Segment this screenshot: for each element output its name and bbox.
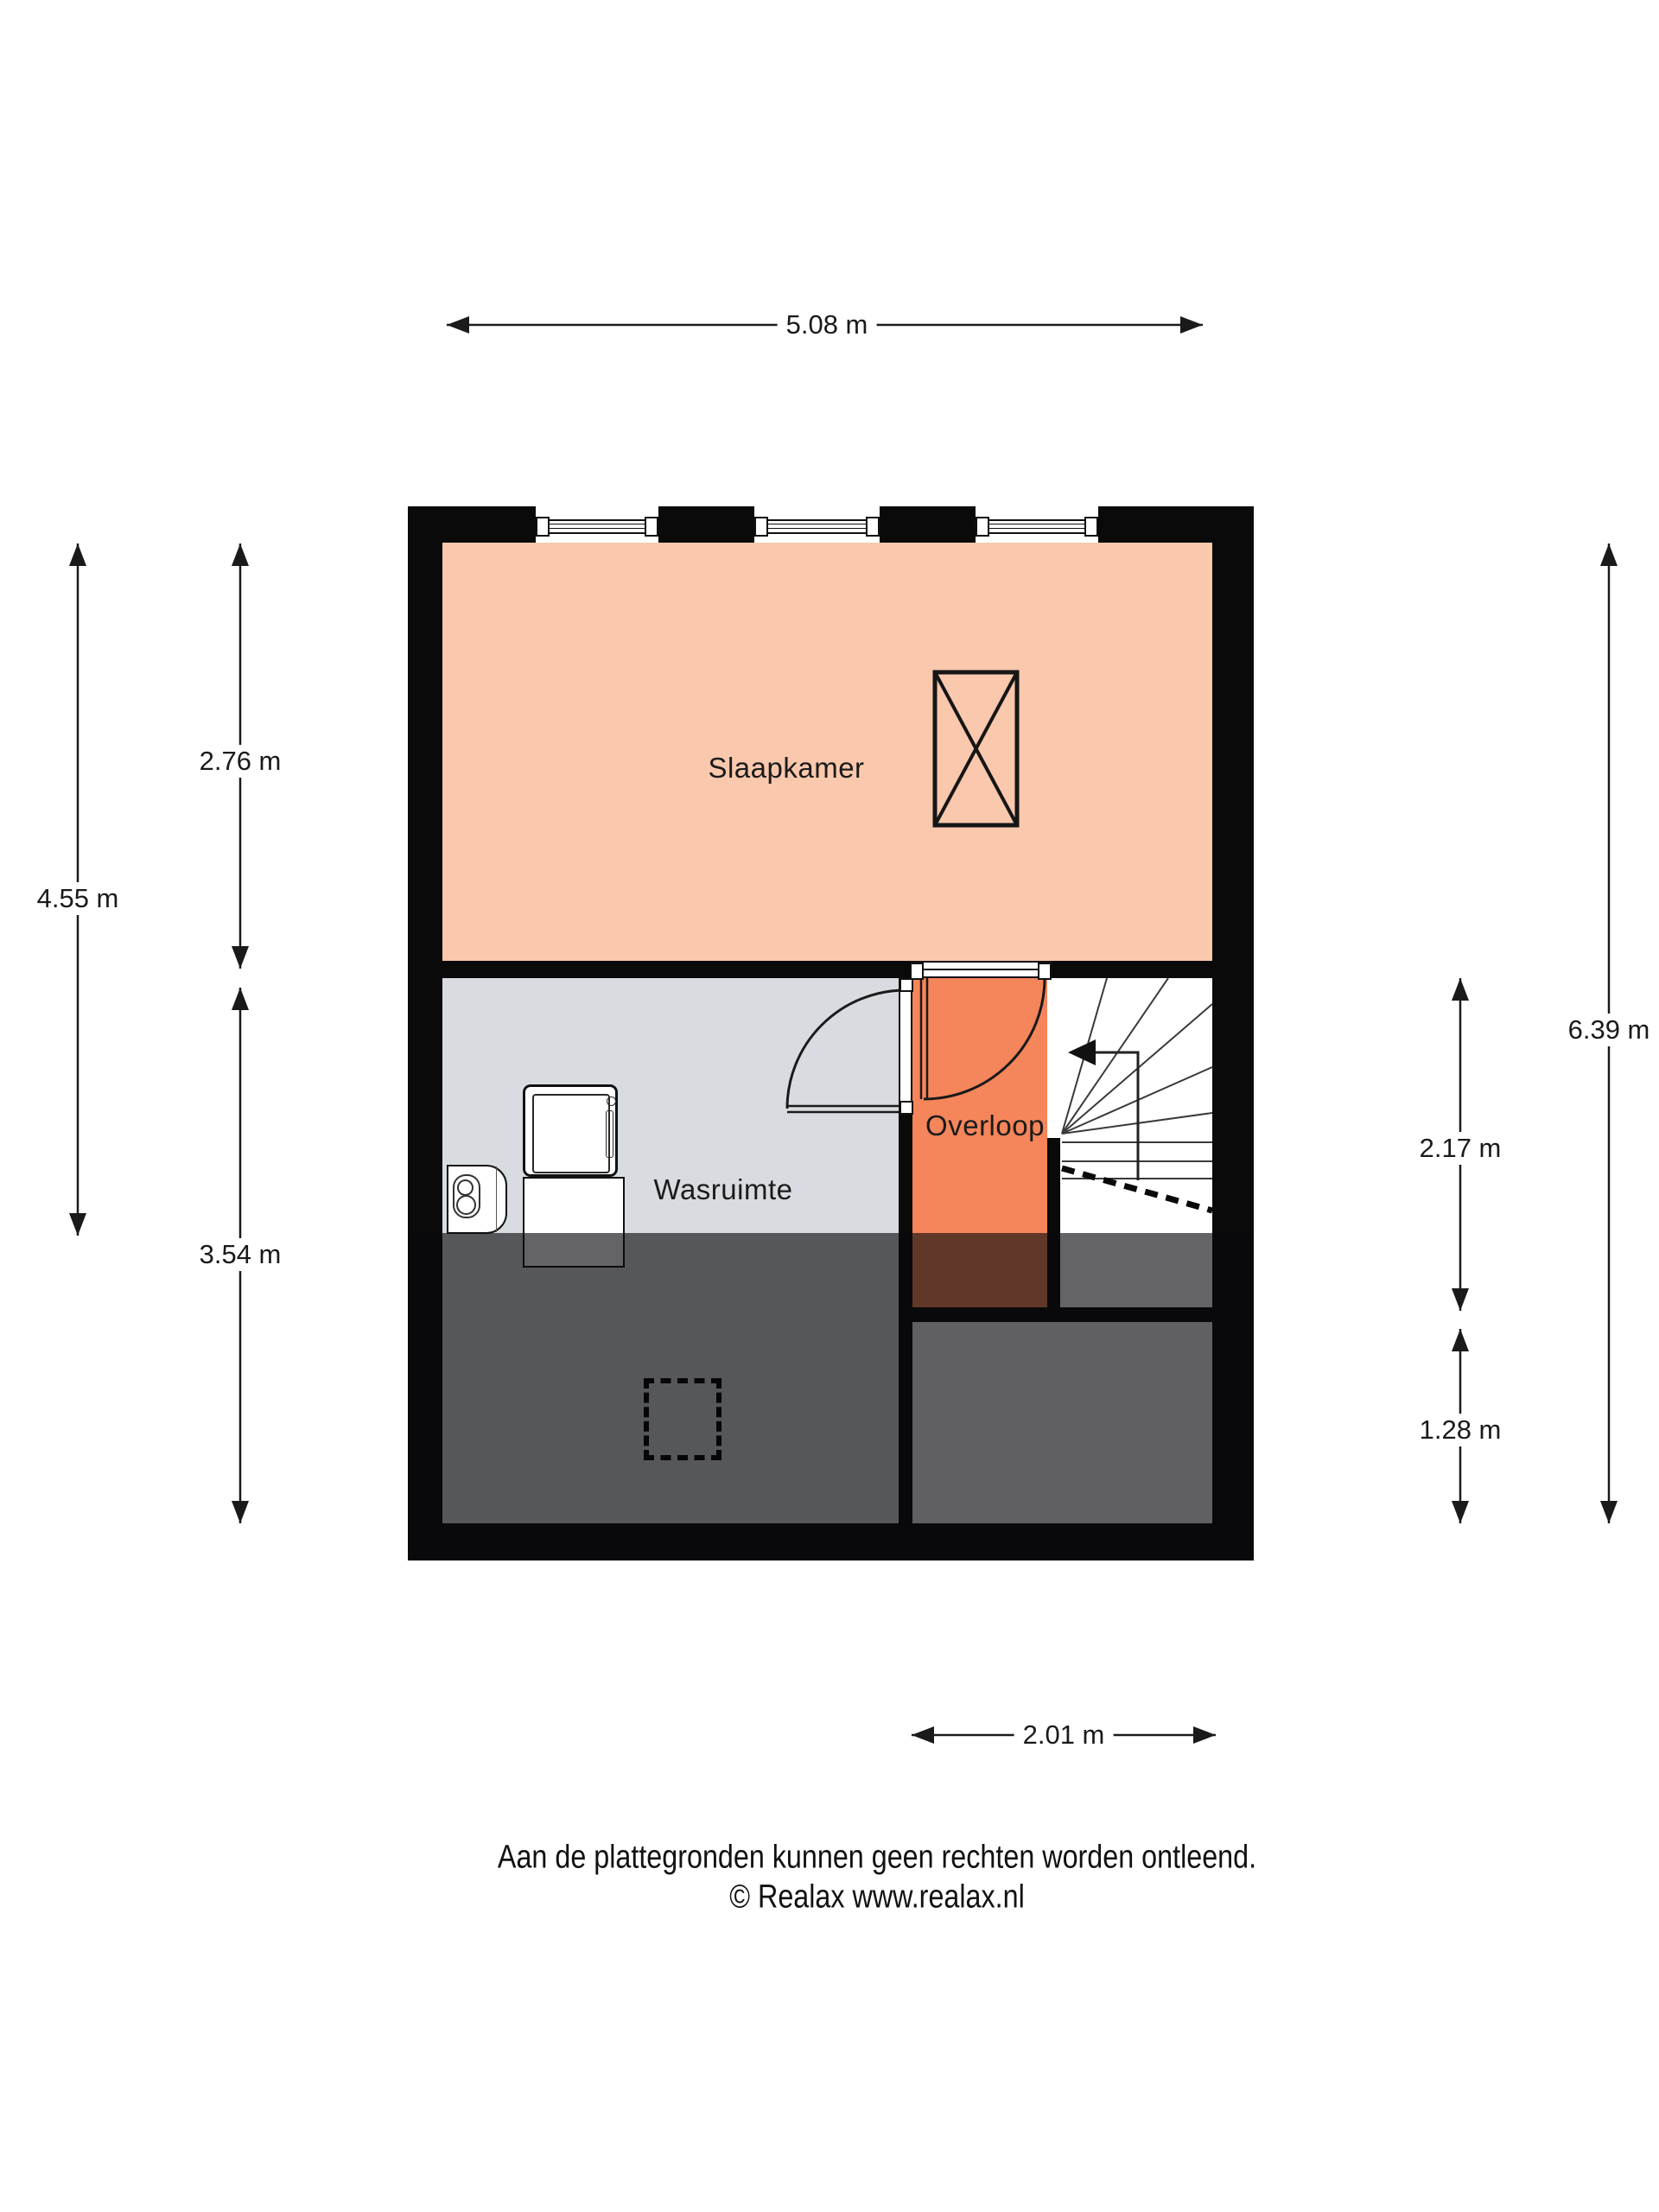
washing-machine-knob [607,1096,616,1106]
dimension-label-left-top: 2.76 m [191,745,290,778]
disclaimer-text: Aan de plattegronden kunnen geen rechten… [498,1840,1256,1877]
room-label-overloop: Overloop [925,1109,1045,1142]
window-icon [976,506,1098,543]
door-jamb [1038,963,1052,980]
wall-top [658,506,754,543]
wall-interior [442,961,910,978]
boiler-dial [457,1179,474,1196]
window-icon [754,506,880,543]
copyright-text: © Realax www.realax.nl [729,1879,1025,1916]
boiler-dial [456,1195,476,1215]
door-jamb [899,1101,913,1115]
dimension-label-height-total: 6.39 m [1560,1014,1659,1046]
window-jamb [976,517,989,537]
room-label-wasruimte: Wasruimte [654,1173,793,1206]
window-jamb [754,517,768,537]
low-headroom-overlay [408,1233,1254,1560]
window-jamb [866,517,880,537]
room-label-slaapkamer: Slaapkamer [708,752,864,785]
dimension-label-left-bottom: 3.54 m [191,1238,290,1271]
washing-machine-panel [606,1110,613,1158]
window-icon [536,506,658,543]
door-frame-top [910,961,1052,978]
dimension-label-right-bottom: 1.28 m [1411,1414,1510,1446]
door-jamb [899,978,913,992]
door-jamb [910,963,924,980]
door-frame-laundry [899,978,912,1115]
wall-top [880,506,976,543]
window-jamb [645,517,658,537]
dimension-label-right-top: 2.17 m [1411,1132,1510,1165]
window-glazing [765,519,869,534]
washing-machine-door [532,1094,610,1173]
window-glazing [546,519,648,534]
washing-machine-icon [523,1084,618,1177]
dimension-label-width-total: 5.08 m [778,308,877,341]
wall-interior [1052,961,1212,978]
floor-plan: Slaapkamer Wasruimte Overloop [0,0,1659,2212]
window-jamb [1084,517,1098,537]
window-jamb [536,517,550,537]
window-glazing [986,519,1088,534]
dimension-label-left-outer: 4.55 m [29,882,128,915]
boiler-edge [496,1166,497,1232]
boiler-icon [447,1165,507,1234]
dimension-label-bottom: 2.01 m [1014,1719,1114,1751]
